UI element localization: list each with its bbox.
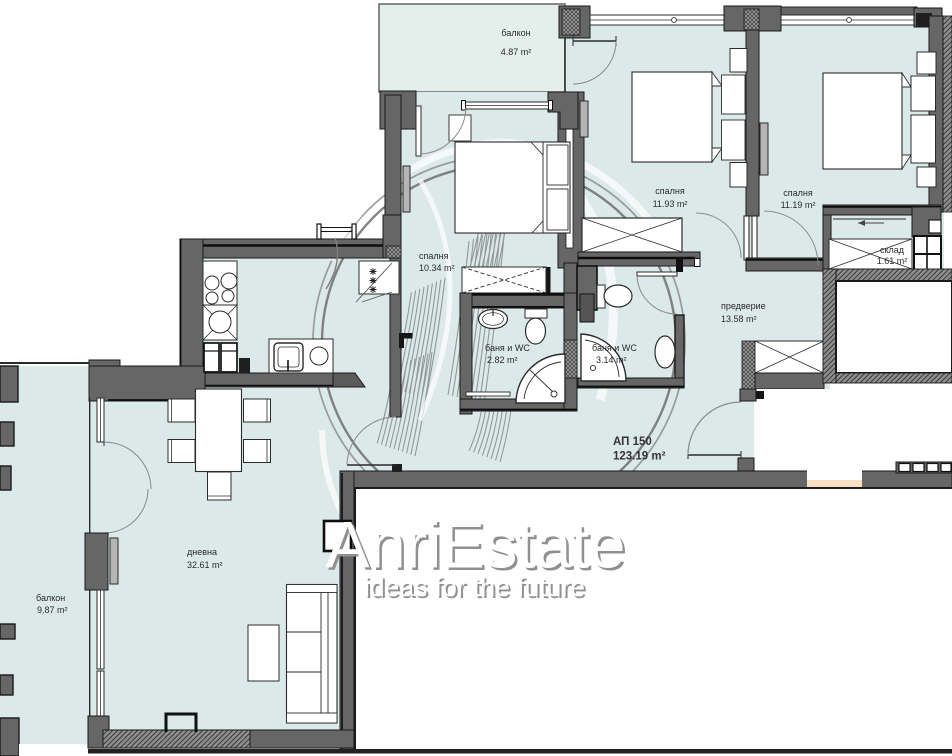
svg-text:баня и WC: баня и WC xyxy=(592,343,637,353)
svg-text:спалня: спалня xyxy=(655,186,685,196)
svg-text:2.82 m²: 2.82 m² xyxy=(487,355,518,365)
svg-text:ideas for the future: ideas for the future xyxy=(364,572,585,602)
svg-text:балкон: балкон xyxy=(36,593,65,603)
svg-text:13.58 m²: 13.58 m² xyxy=(721,314,757,324)
svg-text:10.34 m²: 10.34 m² xyxy=(419,263,455,273)
svg-text:1.61 m²: 1.61 m² xyxy=(877,256,908,266)
svg-text:123.19 m²: 123.19 m² xyxy=(613,451,666,463)
svg-text:9.87 m²: 9.87 m² xyxy=(37,605,68,615)
svg-text:AnriEstate: AnriEstate xyxy=(326,508,625,582)
svg-text:предверие: предверие xyxy=(721,301,766,311)
svg-text:АП 150: АП 150 xyxy=(613,436,652,448)
svg-text:11.93 m²: 11.93 m² xyxy=(653,199,688,209)
svg-text:3.14 m²: 3.14 m² xyxy=(596,355,627,365)
svg-text:спалня: спалня xyxy=(783,188,813,198)
svg-text:спалня: спалня xyxy=(419,251,449,261)
svg-text:балкон: балкон xyxy=(501,28,530,38)
svg-text:дневна: дневна xyxy=(187,547,217,557)
svg-text:4.87 m²: 4.87 m² xyxy=(501,47,532,57)
svg-text:баня и WC: баня и WC xyxy=(485,343,530,353)
svg-text:склад: склад xyxy=(880,245,905,255)
svg-text:11.19 m²: 11.19 m² xyxy=(781,200,816,210)
svg-text:32.61 m²: 32.61 m² xyxy=(187,560,223,570)
